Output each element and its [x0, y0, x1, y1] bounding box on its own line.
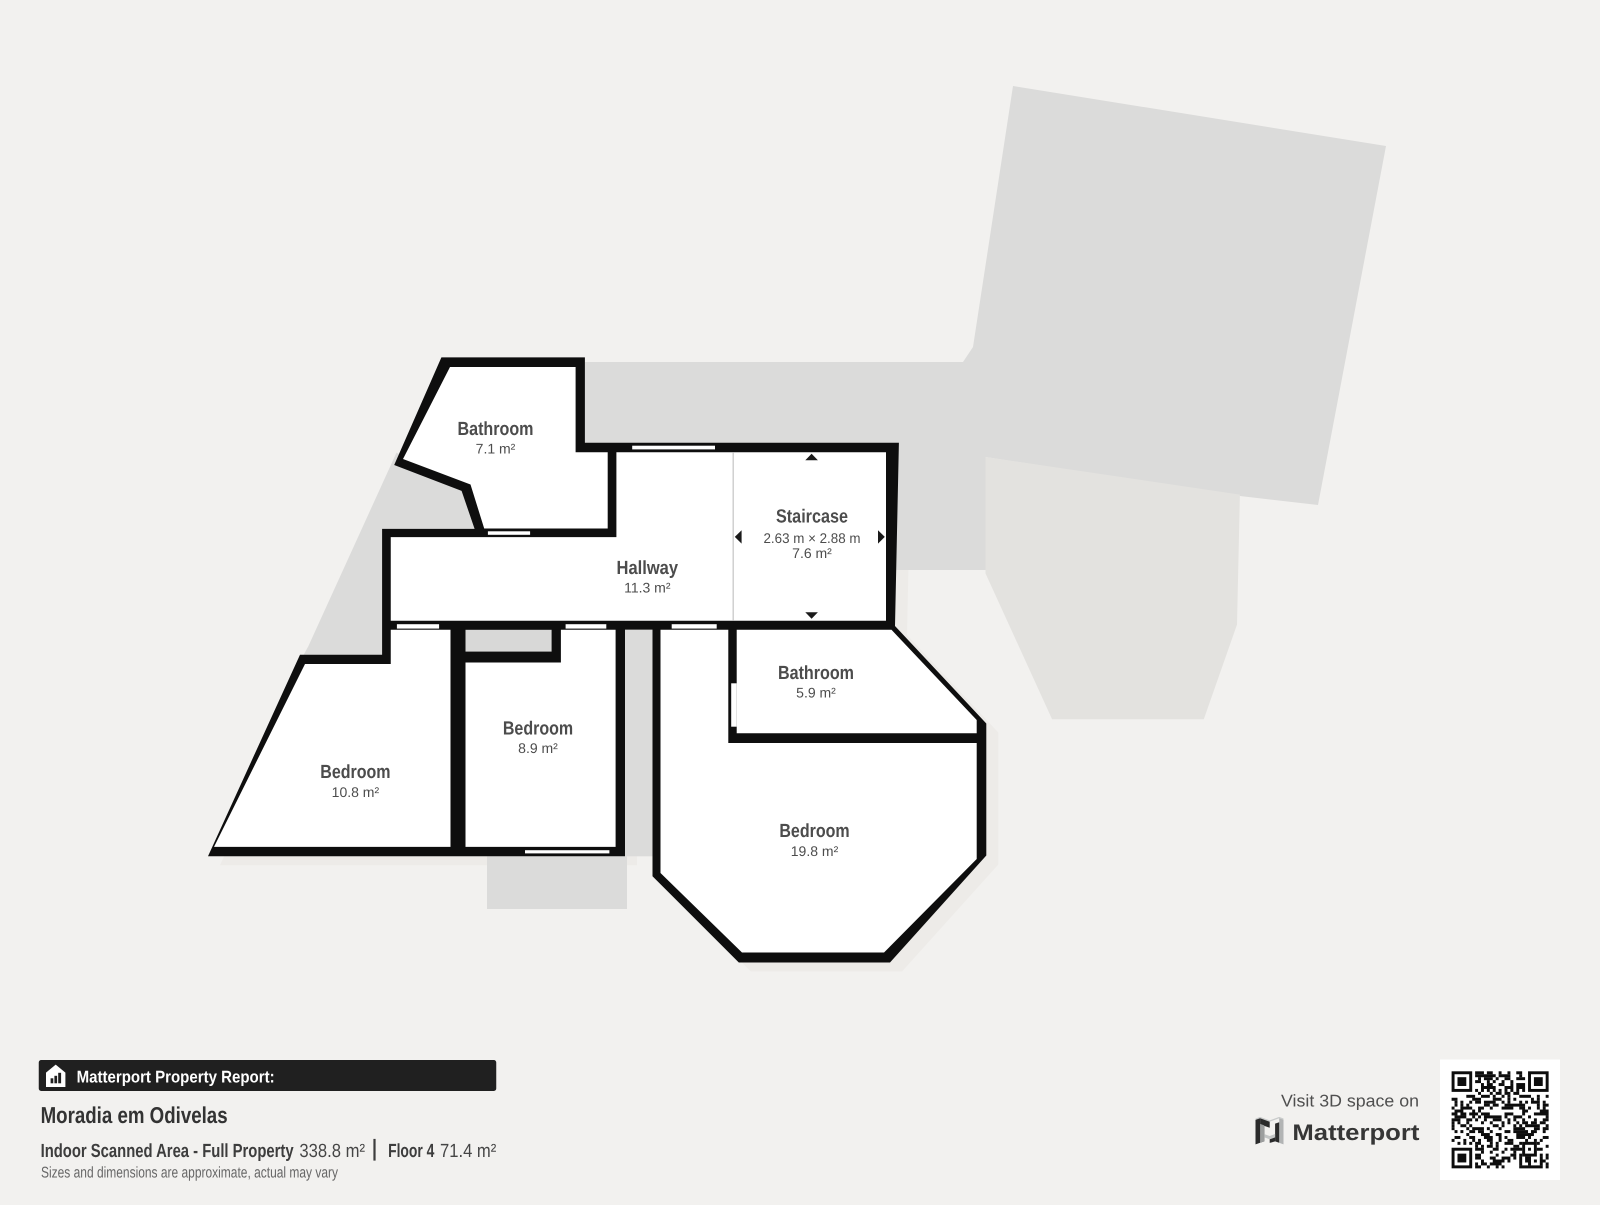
svg-text:Bedroom: Bedroom — [320, 762, 390, 783]
svg-text:Bedroom: Bedroom — [503, 718, 573, 739]
svg-text:Staircase: Staircase — [776, 507, 848, 528]
svg-text:Bedroom: Bedroom — [779, 821, 849, 842]
svg-text:Floor 4: Floor 4 — [388, 1141, 435, 1162]
svg-text:Sizes and dimensions are appro: Sizes and dimensions are approximate, ac… — [41, 1165, 338, 1182]
svg-text:Indoor Scanned Area - Full Pro: Indoor Scanned Area - Full Property — [41, 1141, 294, 1162]
svg-text:Hallway: Hallway — [617, 558, 679, 579]
svg-text:19.8 m²: 19.8 m² — [791, 843, 839, 859]
svg-text:7.1 m²: 7.1 m² — [476, 441, 516, 457]
svg-text:5.9 m²: 5.9 m² — [796, 685, 836, 701]
svg-text:8.9 m²: 8.9 m² — [518, 740, 558, 756]
svg-text:71.4 m²: 71.4 m² — [440, 1141, 496, 1162]
svg-text:7.6 m²: 7.6 m² — [792, 545, 832, 561]
svg-text:Visit 3D space on: Visit 3D space on — [1281, 1092, 1419, 1111]
svg-text:Moradia em Odivelas: Moradia em Odivelas — [41, 1102, 228, 1128]
svg-text:10.8 m²: 10.8 m² — [332, 784, 380, 800]
svg-text:Matterport Property Report:: Matterport Property Report: — [77, 1068, 275, 1087]
svg-text:2.63 m × 2.88 m: 2.63 m × 2.88 m — [764, 530, 861, 546]
svg-text:Matterport: Matterport — [1292, 1120, 1420, 1145]
svg-text:Bathroom: Bathroom — [778, 663, 854, 684]
svg-text:Bathroom: Bathroom — [458, 419, 534, 440]
svg-text:338.8 m²: 338.8 m² — [299, 1141, 365, 1162]
svg-text:11.3 m²: 11.3 m² — [624, 580, 671, 596]
